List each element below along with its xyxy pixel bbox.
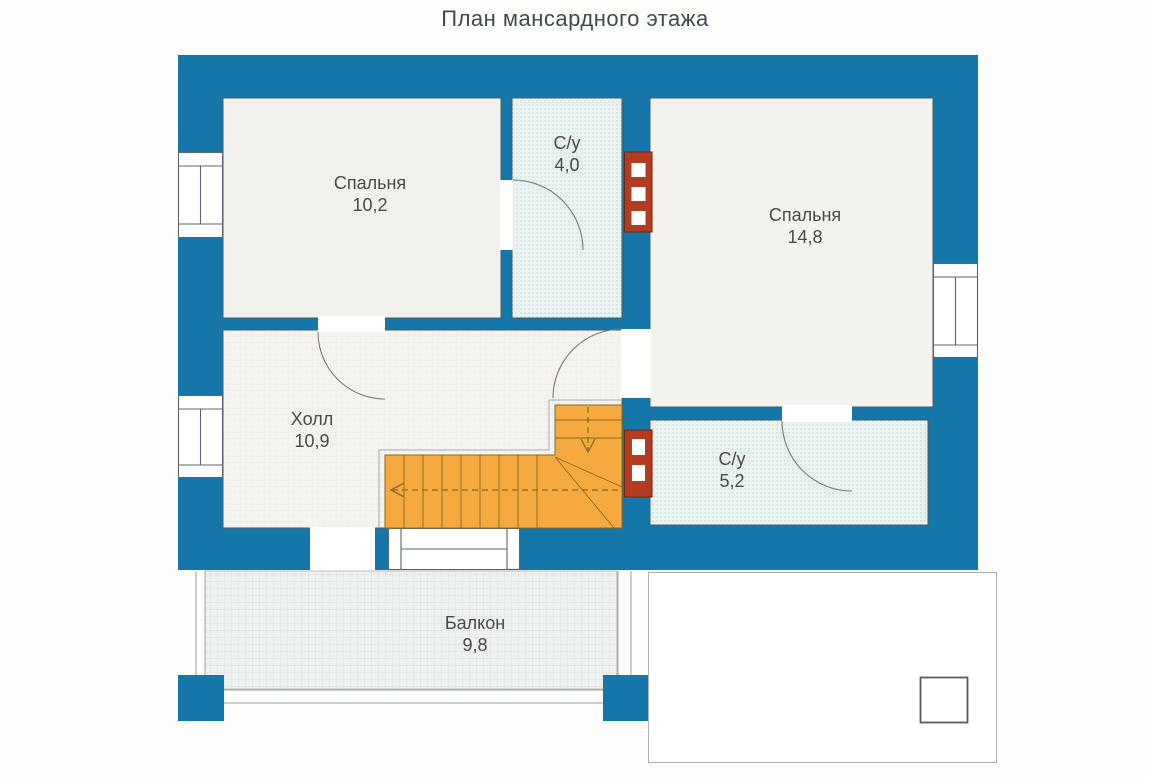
room-area: 14,8 — [705, 226, 905, 248]
door-gap-balcony — [310, 527, 375, 571]
room-area: 10,9 — [237, 430, 387, 452]
note-box-square — [921, 678, 968, 723]
room-area: 5,2 — [682, 470, 782, 492]
room-label-wc-large: С/у 5,2 — [682, 448, 782, 492]
room-label-bedroom-large: Спальня 14,8 — [705, 204, 905, 248]
room-area: 4,0 — [517, 154, 617, 176]
room-name: С/у — [517, 132, 617, 154]
room-name: Балкон — [400, 612, 550, 634]
door-gap-wc-large — [782, 405, 852, 422]
room-area: 9,8 — [400, 634, 550, 656]
room-name: Спальня — [270, 172, 470, 194]
room-wc-small-floor — [512, 98, 622, 318]
room-label-hall: Холл 10,9 — [237, 408, 387, 452]
door-gap-wc-small — [500, 180, 513, 250]
room-bedroom-large-floor — [650, 98, 933, 407]
floor-plan: План мансардного этажа — [0, 0, 1150, 780]
note-box — [649, 573, 997, 763]
balcony-pillar-right — [603, 675, 649, 721]
room-name: Холл — [237, 408, 387, 430]
balcony-pillar-left — [178, 675, 224, 721]
floor-plan-drawing — [0, 0, 1150, 780]
window-right — [934, 264, 978, 358]
door-gap-bedroom-small — [318, 316, 385, 332]
door-gap-bedroom-large — [621, 329, 651, 398]
room-name: С/у — [682, 448, 782, 470]
window-left-top — [179, 153, 223, 238]
window-left-bottom — [179, 396, 223, 478]
room-label-bedroom-small: Спальня 10,2 — [270, 172, 470, 216]
chimney-block-top — [625, 152, 653, 232]
room-label-balcony: Балкон 9,8 — [400, 612, 550, 656]
window-bottom — [389, 529, 520, 570]
chimney-block-bottom — [625, 430, 653, 497]
room-name: Спальня — [705, 204, 905, 226]
room-area: 10,2 — [270, 194, 470, 216]
room-label-wc-small: С/у 4,0 — [517, 132, 617, 176]
